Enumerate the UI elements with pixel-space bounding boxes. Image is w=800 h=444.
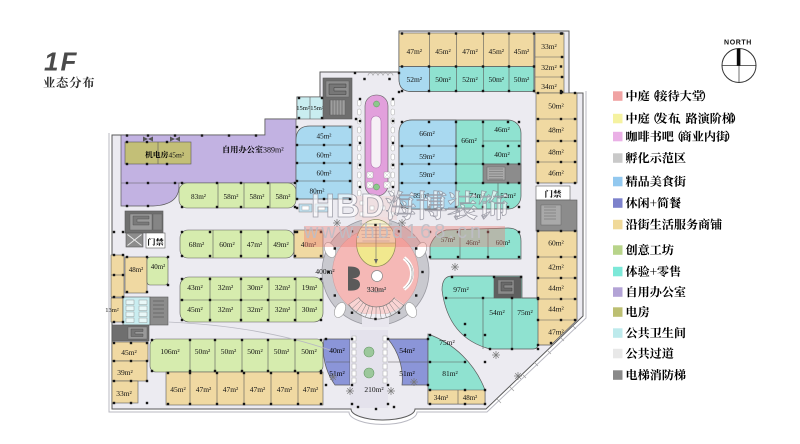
svg-text:68m²: 68m² <box>189 240 205 249</box>
svg-text:45m²: 45m² <box>514 47 530 56</box>
svg-text:50m²: 50m² <box>514 75 530 84</box>
svg-text:www.hbd168.cn: www.hbd168.cn <box>303 221 484 243</box>
svg-text:15m²: 15m² <box>296 105 310 112</box>
svg-text:50m²: 50m² <box>488 75 504 84</box>
svg-text:32m²: 32m² <box>247 305 263 314</box>
svg-text:40m²: 40m² <box>329 346 345 355</box>
svg-text:52m²: 52m² <box>406 75 422 84</box>
svg-text:106m²: 106m² <box>160 347 180 356</box>
svg-text:45m²: 45m² <box>187 305 203 314</box>
svg-text:52m²: 52m² <box>500 191 516 200</box>
svg-text:60m²: 60m² <box>317 152 332 160</box>
svg-text:1F: 1F <box>44 47 78 77</box>
svg-text:210m²: 210m² <box>364 385 384 394</box>
svg-text:45m²: 45m² <box>170 385 186 394</box>
svg-text:34m²: 34m² <box>541 82 557 91</box>
svg-text:97m²: 97m² <box>453 285 469 294</box>
svg-text:48m²: 48m² <box>548 126 564 135</box>
svg-text:32m²: 32m² <box>218 305 234 314</box>
svg-text:45m²: 45m² <box>488 47 504 56</box>
svg-text:39m²: 39m² <box>117 368 133 377</box>
svg-text:34m²: 34m² <box>434 394 449 402</box>
svg-text:NORTH: NORTH <box>724 40 752 47</box>
svg-text:40m²: 40m² <box>151 263 166 271</box>
svg-text:47m²: 47m² <box>196 385 212 394</box>
svg-text:60m²: 60m² <box>548 239 564 248</box>
svg-text:32m²: 32m² <box>218 283 234 292</box>
svg-text:59m²: 59m² <box>419 170 435 179</box>
svg-text:13m²: 13m² <box>105 307 119 314</box>
svg-text:50m²: 50m² <box>247 347 263 356</box>
svg-text:46m²: 46m² <box>548 169 564 178</box>
svg-text:42m²: 42m² <box>548 263 564 272</box>
svg-text:30m²: 30m² <box>302 305 318 314</box>
svg-text:54m²: 54m² <box>489 308 505 317</box>
svg-text:47m²: 47m² <box>462 47 478 56</box>
svg-text:81m²: 81m² <box>442 369 458 378</box>
svg-text:47m²: 47m² <box>250 385 266 394</box>
svg-text:46m²: 46m² <box>494 125 510 134</box>
svg-text:58m²: 58m² <box>250 193 265 201</box>
svg-text:32m²: 32m² <box>275 305 291 314</box>
svg-text:49m²: 49m² <box>273 240 289 249</box>
svg-text:HBD: HBD <box>311 187 386 224</box>
svg-text:47m²: 47m² <box>247 240 263 249</box>
svg-text:50m²: 50m² <box>301 347 317 356</box>
svg-text:50m²: 50m² <box>548 102 564 111</box>
svg-text:75m²: 75m² <box>439 338 455 347</box>
svg-text:83m²: 83m² <box>191 193 206 201</box>
svg-text:50m²: 50m² <box>274 347 290 356</box>
svg-text:58m²: 58m² <box>224 193 239 201</box>
svg-text:50m²: 50m² <box>195 347 211 356</box>
svg-text:48m²: 48m² <box>463 394 478 402</box>
svg-text:47m²: 47m² <box>303 385 319 394</box>
svg-text:48m²: 48m² <box>548 148 564 157</box>
svg-text:400m²: 400m² <box>315 267 335 276</box>
svg-text:66m²: 66m² <box>419 129 435 138</box>
svg-text:50m²: 50m² <box>221 347 237 356</box>
svg-text:47m²: 47m² <box>406 47 422 56</box>
svg-text:43m²: 43m² <box>187 283 203 292</box>
svg-text:33m²: 33m² <box>116 389 132 398</box>
svg-text:45m²: 45m² <box>121 348 137 357</box>
svg-text:44m²: 44m² <box>548 305 564 314</box>
svg-text:15m²: 15m² <box>310 105 324 112</box>
svg-text:51m²: 51m² <box>399 369 415 378</box>
svg-text:50m²: 50m² <box>435 75 451 84</box>
svg-text:52m²: 52m² <box>462 75 478 84</box>
svg-text:44m²: 44m² <box>548 284 564 293</box>
svg-text:58m²: 58m² <box>276 193 291 201</box>
svg-text:47m²: 47m² <box>277 385 293 394</box>
svg-text:32m²: 32m² <box>275 283 291 292</box>
svg-text:45m²: 45m² <box>435 47 451 56</box>
svg-text:40m²: 40m² <box>494 150 510 159</box>
svg-text:45m²: 45m² <box>317 133 332 141</box>
svg-text:54m²: 54m² <box>399 346 415 355</box>
svg-text:47m²: 47m² <box>223 385 239 394</box>
svg-text:66m²: 66m² <box>461 136 477 145</box>
svg-text:60m²: 60m² <box>317 170 332 178</box>
svg-text:389m²: 389m² <box>263 146 284 155</box>
svg-text:33m²: 33m² <box>541 42 557 51</box>
svg-text:48m²: 48m² <box>129 266 144 274</box>
svg-text:330m²: 330m² <box>367 285 387 294</box>
svg-text:75m²: 75m² <box>517 308 533 317</box>
svg-text:47m²: 47m² <box>548 328 564 337</box>
svg-text:32m²: 32m² <box>541 63 557 72</box>
svg-text:59m²: 59m² <box>419 152 435 161</box>
svg-text:60m²: 60m² <box>219 240 235 249</box>
svg-text:30m²: 30m² <box>247 283 263 292</box>
svg-text:45m²: 45m² <box>169 151 185 160</box>
svg-text:19m²: 19m² <box>302 283 318 292</box>
